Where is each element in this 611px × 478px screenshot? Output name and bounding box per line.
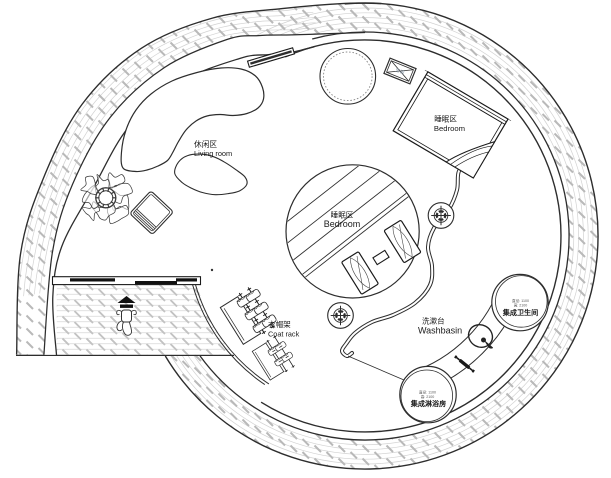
svg-text:高: 2100: 高: 2100 (514, 303, 528, 308)
svg-text:Washbasin: Washbasin (418, 326, 462, 336)
svg-text:集成卫生间: 集成卫生间 (502, 308, 538, 317)
svg-text:高: 2100: 高: 2100 (421, 394, 435, 399)
svg-text:睡眠区: 睡眠区 (434, 115, 457, 124)
svg-text:直径: 1100: 直径: 1100 (419, 389, 436, 394)
svg-text:衣帽架: 衣帽架 (268, 319, 291, 329)
svg-text:洗漱台: 洗漱台 (422, 316, 445, 326)
svg-text:Living room: Living room (194, 149, 232, 158)
svg-text:休闲区: 休闲区 (194, 139, 217, 149)
svg-text:Coat rack: Coat rack (268, 330, 300, 339)
svg-text:Bedroom: Bedroom (324, 219, 361, 229)
svg-text:Bedroom: Bedroom (434, 124, 465, 133)
svg-text:集成淋浴房: 集成淋浴房 (410, 399, 446, 408)
svg-text:直径: 1100: 直径: 1100 (512, 298, 529, 303)
